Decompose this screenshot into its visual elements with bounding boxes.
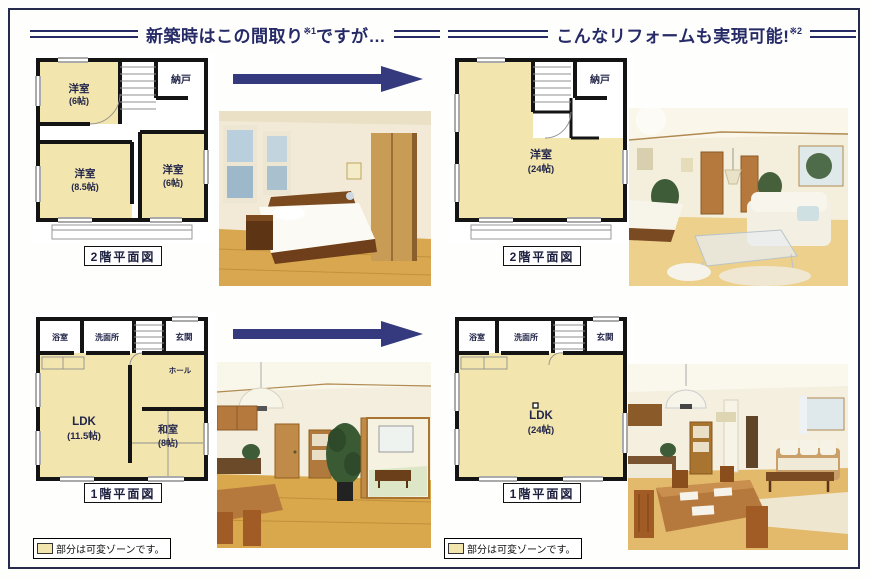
room-label: 洗面所 (95, 332, 119, 342)
header-after-footnote: ※2 (789, 26, 802, 36)
double-rule-right (810, 30, 856, 38)
photo-ldk-after (628, 364, 848, 550)
header-before-footnote: ※1 (303, 26, 316, 36)
room-size: (6帖) (163, 177, 183, 188)
photo-bedroom-after (629, 108, 848, 286)
photo-ldk-before (217, 362, 431, 548)
room-label: 洋室 (530, 147, 552, 161)
floorplan-after-2f-drawing: 洋室 (24帖) 納戸 (449, 54, 634, 244)
floorplan-before-2f: 洋室 (6帖) 納戸 洋室 (8.5帖) 洋室 (6帖) (30, 54, 215, 249)
header-before: 新築時はこの間取り※1ですが… (30, 22, 440, 46)
caption-before-2f: 2階平面図 (84, 246, 162, 266)
floorplan-before-1f-drawing: 浴室 洗面所 玄関 ホール LDK (11.5帖) 和室 (8帖) (30, 313, 215, 483)
legend-after-text: 部分は可変ゾーンです。 (467, 541, 576, 556)
double-rule-left (448, 30, 548, 38)
room-label: 納戸 (171, 73, 191, 86)
legend-before-text: 部分は可変ゾーンです。 (56, 541, 165, 556)
room-label: 玄関 (175, 332, 192, 342)
double-rule-right (394, 30, 440, 38)
floorplan-before-1f: 浴室 洗面所 玄関 ホール LDK (11.5帖) 和室 (8帖) (30, 313, 215, 488)
floorplan-before-2f-drawing: 洋室 (6帖) 納戸 洋室 (8.5帖) 洋室 (6帖) (30, 54, 215, 244)
room-size: (8.5帖) (71, 181, 99, 192)
photo-bedroom-before (219, 111, 431, 286)
double-rule-left (30, 30, 138, 38)
caption-before-1f: 1階平面図 (84, 483, 162, 503)
room-size: (24帖) (528, 424, 554, 436)
room-label: 洋室 (69, 82, 90, 95)
caption-after-1f: 1階平面図 (503, 483, 581, 503)
variable-zone-swatch (37, 543, 53, 554)
caption-after-2f: 2階平面図 (503, 246, 581, 266)
room-label: ホール (169, 366, 192, 375)
room-label: 和室 (157, 423, 178, 436)
floorplan-after-1f: 浴室 洗面所 玄関 LDK (24帖) (449, 313, 634, 488)
brochure-page: 新築時はこの間取り※1ですが… こんなリフォームも実現可能!※2 (0, 0, 870, 579)
room-label: 浴室 (52, 332, 68, 342)
room-label: 納戸 (590, 73, 610, 86)
room-size: (24帖) (528, 163, 554, 175)
header-before-tail: ですが… (316, 27, 386, 46)
header-after-text: こんなリフォームも実現可能!※2 (556, 22, 802, 47)
header-before-title: 新築時はこの間取り (146, 27, 304, 46)
floorplan-after-1f-drawing: 浴室 洗面所 玄関 LDK (24帖) (449, 313, 634, 483)
header-after: こんなリフォームも実現可能!※2 (448, 22, 856, 46)
header-before-text: 新築時はこの間取り※1ですが… (146, 22, 386, 47)
room-label: LDK (72, 416, 96, 428)
room-label: 浴室 (469, 332, 485, 342)
variable-zone-swatch (448, 543, 464, 554)
header-after-title: こんなリフォームも実現可能! (556, 27, 789, 46)
room-size: (6帖) (69, 95, 89, 106)
room-label: 洗面所 (514, 332, 538, 342)
legend-before: 部分は可変ゾーンです。 (33, 538, 171, 559)
room-size: (8帖) (158, 437, 178, 448)
room-label: 洋室 (75, 167, 96, 180)
room-size: (11.5帖) (67, 430, 101, 442)
arrow-right-2f (233, 63, 423, 100)
room-label: 玄関 (596, 332, 613, 342)
arrow-right-1f (233, 318, 423, 355)
floorplan-after-2f: 洋室 (24帖) 納戸 (449, 54, 634, 249)
room-label: 洋室 (163, 163, 184, 176)
legend-after: 部分は可変ゾーンです。 (444, 538, 582, 559)
room-label: LDK (529, 410, 553, 422)
